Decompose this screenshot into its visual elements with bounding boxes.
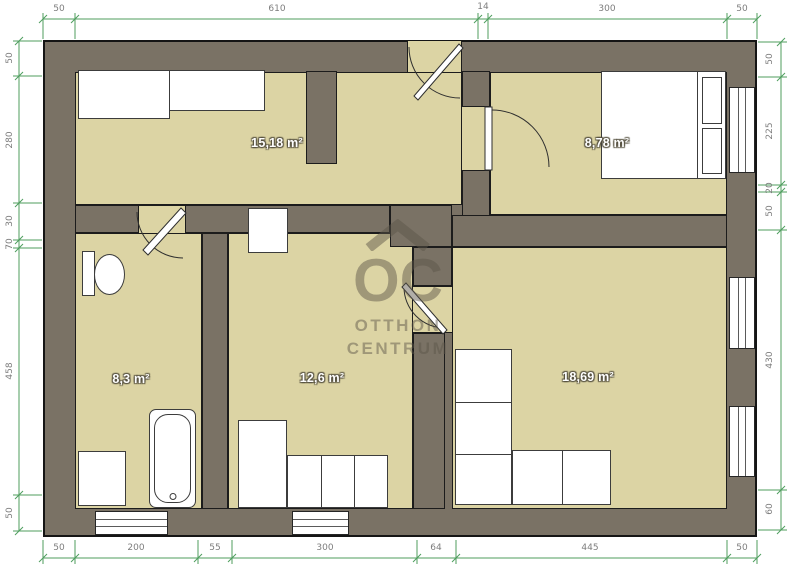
wall-bathroom-vertical — [202, 233, 228, 509]
dimension-label: 30 — [5, 215, 15, 226]
window-glazing — [738, 88, 746, 172]
wall-middle-right — [452, 215, 727, 247]
dimension-line-bottom — [39, 540, 761, 564]
kitchen-counter-right — [169, 70, 265, 111]
dimension-label: 50 — [765, 53, 775, 64]
bedroom-door-opening — [462, 106, 490, 171]
window-right-middle — [729, 277, 755, 349]
room-area-label: 18,69 m² — [562, 370, 614, 384]
cushion-line — [456, 454, 511, 455]
dimension-label: 200 — [127, 543, 144, 553]
pillow — [702, 77, 722, 124]
window-glazing — [738, 407, 746, 476]
window-glazing — [96, 519, 167, 527]
bed-divider-line — [697, 72, 698, 178]
dimension-label: 50 — [736, 4, 747, 14]
room-area-label: 12,6 m² — [300, 371, 344, 385]
sofa-seat — [287, 455, 388, 508]
window-bottom-middle — [292, 511, 349, 535]
sofa-chaise — [238, 420, 287, 508]
wall-center-block — [390, 205, 452, 247]
washing-machine — [78, 451, 126, 506]
dimension-label: 50 — [765, 205, 775, 216]
room-area-label: 8,3 m² — [112, 372, 149, 386]
dimension-label: 225 — [765, 122, 775, 139]
window-glazing — [293, 519, 348, 527]
dimension-label: 70 — [5, 238, 15, 249]
window-glazing — [738, 278, 746, 348]
wall-vertical-middle — [413, 333, 445, 509]
cushion-line — [354, 456, 355, 507]
wall-middle-left — [75, 205, 390, 233]
dimension-label: 50 — [5, 507, 15, 518]
dimension-label: 14 — [477, 2, 488, 12]
dimension-label: 430 — [765, 351, 775, 368]
window-right-top — [729, 87, 755, 173]
pillow — [702, 128, 722, 174]
dimension-label: 300 — [316, 543, 333, 553]
dimension-label: 64 — [430, 543, 441, 553]
dimension-label: 55 — [209, 543, 220, 553]
dimension-label: 445 — [581, 543, 598, 553]
kitchen-counter-left — [78, 70, 170, 119]
entrance-opening — [407, 41, 462, 72]
dimension-label: 50 — [5, 52, 15, 63]
dimension-line-top — [39, 13, 761, 39]
dimension-line-left — [13, 37, 42, 535]
bathtub — [149, 409, 196, 508]
bathroom-door-opening — [138, 206, 186, 233]
cabinet — [248, 208, 288, 253]
dimension-label: 300 — [598, 4, 615, 14]
corner-sofa-vertical — [455, 349, 512, 505]
middle-door-opening — [413, 286, 452, 333]
corner-sofa-horizontal — [512, 450, 611, 505]
dimension-label: 60 — [765, 503, 775, 514]
dimension-label: 20 — [765, 182, 775, 193]
dimension-label: 458 — [5, 362, 15, 379]
dimension-line-right — [758, 38, 787, 534]
wall-center-column — [413, 247, 452, 286]
dimension-label: 610 — [268, 4, 285, 14]
bathtub-drain — [169, 493, 176, 500]
dimension-label: 50 — [53, 543, 64, 553]
bathtub-inner — [154, 414, 191, 503]
bed — [601, 71, 726, 179]
room-area-label: 15,18 m² — [251, 136, 303, 150]
window-right-bottom — [729, 406, 755, 477]
window-bottom-left — [95, 511, 168, 535]
cushion-line — [321, 456, 322, 507]
cushion-line — [456, 402, 511, 403]
wall-entry-lower — [462, 170, 490, 216]
wall-stub-top — [306, 71, 337, 164]
dimension-label: 280 — [5, 131, 15, 148]
dimension-label: 50 — [53, 4, 64, 14]
room-area-label: 8,78 m² — [585, 136, 629, 150]
wall-entry-upper — [462, 71, 490, 107]
toilet-bowl — [94, 254, 125, 295]
floor-plan: 50 610 14 300 50 50 200 55 300 64 445 50… — [0, 0, 800, 577]
cushion-line — [562, 451, 563, 504]
dimension-label: 50 — [736, 543, 747, 553]
